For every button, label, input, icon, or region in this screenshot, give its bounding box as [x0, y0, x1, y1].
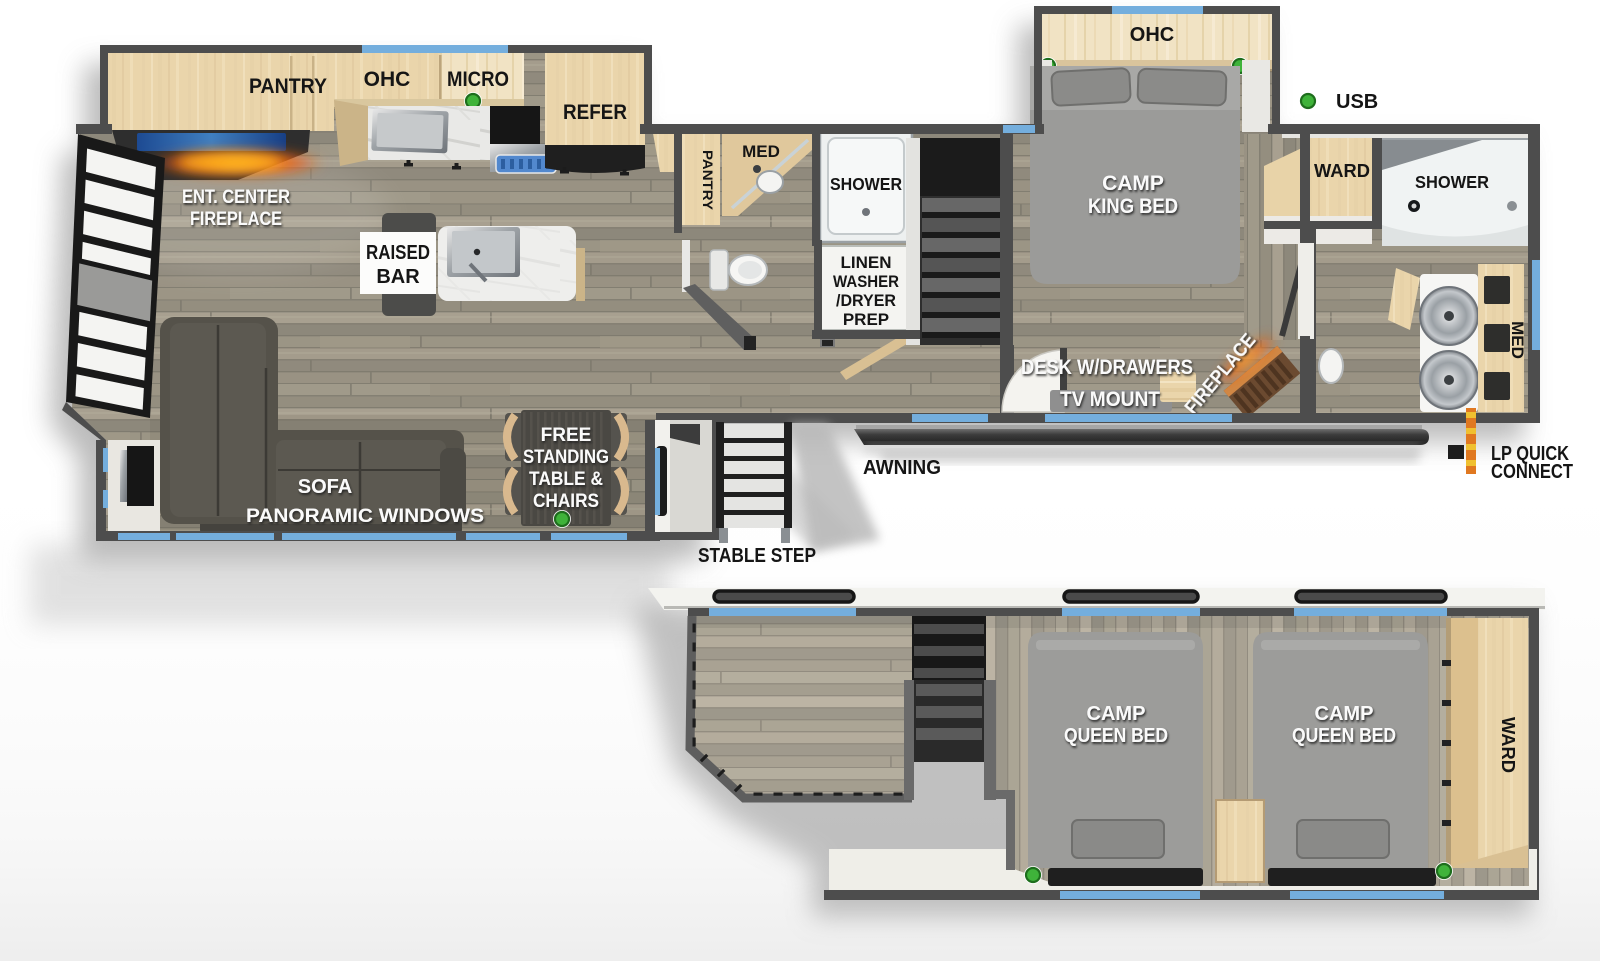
svg-text:WARD: WARD — [1498, 717, 1518, 773]
svg-text:FIREPLACE: FIREPLACE — [190, 209, 282, 230]
svg-text:REFER: REFER — [563, 101, 627, 124]
svg-text:FREE: FREE — [541, 425, 592, 446]
svg-text:SHOWER: SHOWER — [830, 174, 902, 194]
svg-text:CAMP: CAMP — [1102, 172, 1164, 195]
svg-text:SHOWER: SHOWER — [1415, 172, 1489, 192]
svg-text:CAMP: CAMP — [1315, 703, 1374, 725]
svg-text:PANTRY: PANTRY — [700, 150, 715, 210]
svg-text:WASHER: WASHER — [833, 272, 899, 291]
svg-text:QUEEN BED: QUEEN BED — [1292, 725, 1396, 747]
svg-text:CAMP: CAMP — [1087, 703, 1146, 725]
svg-text:PREP: PREP — [843, 310, 889, 329]
svg-text:QUEEN BED: QUEEN BED — [1064, 725, 1168, 747]
svg-text:AWNING: AWNING — [863, 457, 941, 479]
svg-text:TABLE &: TABLE & — [529, 469, 603, 490]
svg-text:STANDING: STANDING — [523, 447, 609, 468]
svg-text:/DRYER: /DRYER — [836, 291, 896, 310]
svg-text:STABLE STEP: STABLE STEP — [698, 545, 816, 567]
svg-text:TV MOUNT: TV MOUNT — [1060, 388, 1160, 411]
svg-text:MICRO: MICRO — [447, 68, 509, 91]
svg-text:CONNECT: CONNECT — [1491, 461, 1573, 483]
svg-text:PANORAMIC WINDOWS: PANORAMIC WINDOWS — [246, 506, 484, 527]
svg-text:KING BED: KING BED — [1088, 195, 1178, 218]
svg-text:OHC: OHC — [1130, 24, 1174, 46]
svg-text:DESK W/DRAWERS: DESK W/DRAWERS — [1021, 356, 1193, 379]
svg-text:OHC: OHC — [364, 68, 411, 91]
svg-text:SOFA: SOFA — [298, 476, 352, 498]
svg-text:RAISED: RAISED — [366, 242, 430, 264]
svg-text:USB: USB — [1336, 91, 1378, 113]
svg-text:LINEN: LINEN — [841, 253, 892, 272]
svg-text:BAR: BAR — [376, 266, 420, 288]
svg-text:MED: MED — [1508, 321, 1527, 359]
svg-text:MED: MED — [742, 142, 780, 161]
svg-text:PANTRY: PANTRY — [249, 75, 327, 98]
svg-text:CHAIRS: CHAIRS — [533, 491, 599, 512]
svg-text:ENT. CENTER: ENT. CENTER — [182, 187, 290, 208]
svg-text:WARD: WARD — [1314, 161, 1370, 181]
